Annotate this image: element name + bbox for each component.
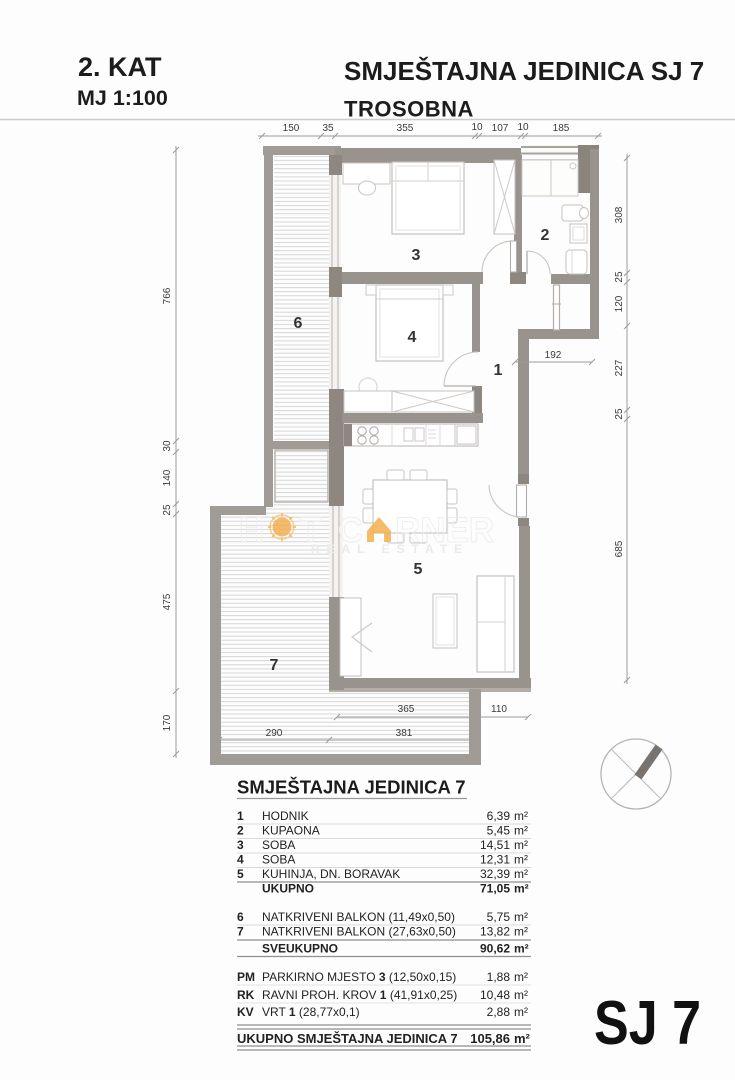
svg-text:m²: m² bbox=[514, 942, 529, 956]
svg-text:4: 4 bbox=[237, 853, 244, 867]
svg-text:25: 25 bbox=[614, 271, 625, 283]
svg-text:120: 120 bbox=[614, 295, 625, 312]
svg-text:2: 2 bbox=[541, 227, 550, 244]
svg-text:m²: m² bbox=[514, 925, 528, 939]
svg-text:110: 110 bbox=[491, 704, 507, 715]
svg-text:365: 365 bbox=[398, 704, 415, 715]
svg-text:185: 185 bbox=[553, 123, 570, 134]
svg-text:2: 2 bbox=[237, 824, 244, 838]
svg-text:TROSOBNA: TROSOBNA bbox=[344, 97, 474, 122]
svg-text:SJ 7: SJ 7 bbox=[594, 989, 701, 1058]
svg-text:5: 5 bbox=[414, 561, 423, 578]
svg-text:PM: PM bbox=[237, 970, 255, 984]
svg-text:150: 150 bbox=[283, 123, 300, 134]
svg-text:m²: m² bbox=[514, 809, 528, 823]
svg-text:227: 227 bbox=[614, 359, 625, 376]
svg-text:UKUPNO SMJEŠTAJNA JEDINICA 7: UKUPNO SMJEŠTAJNA JEDINICA 7 bbox=[237, 1031, 458, 1046]
svg-text:105,86: 105,86 bbox=[470, 1031, 510, 1046]
svg-text:7: 7 bbox=[270, 657, 279, 674]
svg-text:SMJEŠTAJNA JEDINICA SJ 7: SMJEŠTAJNA JEDINICA SJ 7 bbox=[344, 56, 704, 86]
svg-text:25: 25 bbox=[614, 408, 625, 420]
svg-text:30: 30 bbox=[162, 440, 173, 452]
svg-text:m²: m² bbox=[514, 970, 528, 984]
svg-text:3: 3 bbox=[237, 838, 244, 852]
svg-text:NATKRIVENI BALKON (11,49x0,50): NATKRIVENI BALKON (11,49x0,50) bbox=[262, 910, 455, 924]
svg-text:m²: m² bbox=[514, 988, 528, 1002]
svg-text:m²: m² bbox=[514, 882, 529, 896]
svg-text:KUHINJA, DN. BORAVAK: KUHINJA, DN. BORAVAK bbox=[262, 867, 400, 881]
svg-text:SMJEŠTAJNA JEDINICA 7: SMJEŠTAJNA JEDINICA 7 bbox=[237, 777, 466, 798]
svg-text:1: 1 bbox=[237, 809, 244, 823]
svg-text:170: 170 bbox=[162, 714, 173, 731]
svg-text:6: 6 bbox=[294, 315, 303, 332]
svg-text:192: 192 bbox=[545, 350, 562, 361]
svg-text:m²: m² bbox=[514, 853, 528, 867]
svg-text:SOBA: SOBA bbox=[262, 853, 295, 867]
svg-text:PARKIRNO MJESTO 3 (12,50x0,15): PARKIRNO MJESTO 3 (12,50x0,15) bbox=[262, 970, 456, 984]
svg-text:NATKRIVENI BALKON (27,63x0,50): NATKRIVENI BALKON (27,63x0,50) bbox=[262, 925, 456, 939]
svg-text:m²: m² bbox=[514, 824, 528, 838]
svg-text:381: 381 bbox=[396, 728, 413, 739]
svg-text:m²: m² bbox=[514, 867, 528, 881]
svg-text:308: 308 bbox=[614, 206, 625, 223]
svg-text:10: 10 bbox=[517, 122, 529, 133]
svg-text:32,39: 32,39 bbox=[480, 867, 510, 881]
svg-text:2,88: 2,88 bbox=[487, 1005, 511, 1019]
svg-text:355: 355 bbox=[397, 123, 414, 134]
svg-text:m²: m² bbox=[514, 1031, 531, 1046]
svg-text:MJ 1:100: MJ 1:100 bbox=[77, 86, 168, 110]
svg-text:12,31: 12,31 bbox=[480, 853, 510, 867]
svg-text:m²: m² bbox=[514, 1005, 528, 1019]
svg-text:10,48: 10,48 bbox=[480, 988, 510, 1002]
svg-text:m²: m² bbox=[514, 838, 528, 852]
svg-text:14,51: 14,51 bbox=[480, 838, 510, 852]
svg-text:13,82: 13,82 bbox=[480, 925, 510, 939]
svg-text:RK: RK bbox=[237, 988, 255, 1002]
svg-text:1: 1 bbox=[494, 362, 503, 379]
svg-text:1,88: 1,88 bbox=[487, 970, 511, 984]
svg-text:475: 475 bbox=[162, 593, 173, 610]
svg-text:5: 5 bbox=[237, 867, 244, 881]
svg-text:KUPAONA: KUPAONA bbox=[262, 824, 320, 838]
svg-text:SOBA: SOBA bbox=[262, 838, 295, 852]
svg-text:H: H bbox=[239, 511, 264, 550]
svg-text:2. KAT: 2. KAT bbox=[78, 52, 162, 82]
svg-text:290: 290 bbox=[266, 728, 283, 739]
svg-text:25: 25 bbox=[162, 504, 173, 516]
svg-text:6: 6 bbox=[237, 910, 244, 924]
svg-text:35: 35 bbox=[322, 123, 334, 134]
svg-text:5,75: 5,75 bbox=[487, 910, 511, 924]
svg-text:SVEUKUPNO: SVEUKUPNO bbox=[262, 942, 338, 956]
svg-text:7: 7 bbox=[237, 925, 244, 939]
svg-text:140: 140 bbox=[162, 469, 173, 486]
svg-text:685: 685 bbox=[614, 540, 625, 557]
svg-text:10: 10 bbox=[471, 122, 483, 133]
svg-text:6,39: 6,39 bbox=[487, 809, 511, 823]
svg-text:4: 4 bbox=[408, 329, 417, 346]
svg-text:UKUPNO: UKUPNO bbox=[262, 882, 314, 896]
svg-text:RAVNI PROH. KROV 1 (41,91x0,25: RAVNI PROH. KROV 1 (41,91x0,25) bbox=[262, 988, 457, 1002]
svg-text:m²: m² bbox=[514, 910, 528, 924]
svg-text:REAL ESTATE: REAL ESTATE bbox=[311, 542, 469, 556]
svg-text:766: 766 bbox=[162, 287, 173, 304]
svg-text:90,62: 90,62 bbox=[480, 942, 510, 956]
svg-text:KV: KV bbox=[237, 1005, 254, 1019]
svg-text:3: 3 bbox=[412, 247, 421, 264]
svg-text:71,05: 71,05 bbox=[480, 882, 510, 896]
svg-text:HODNIK: HODNIK bbox=[262, 809, 309, 823]
svg-text:5,45: 5,45 bbox=[487, 824, 511, 838]
svg-text:107: 107 bbox=[492, 123, 509, 134]
svg-text:VRT 1 (28,77x0,1): VRT 1 (28,77x0,1) bbox=[262, 1005, 360, 1019]
